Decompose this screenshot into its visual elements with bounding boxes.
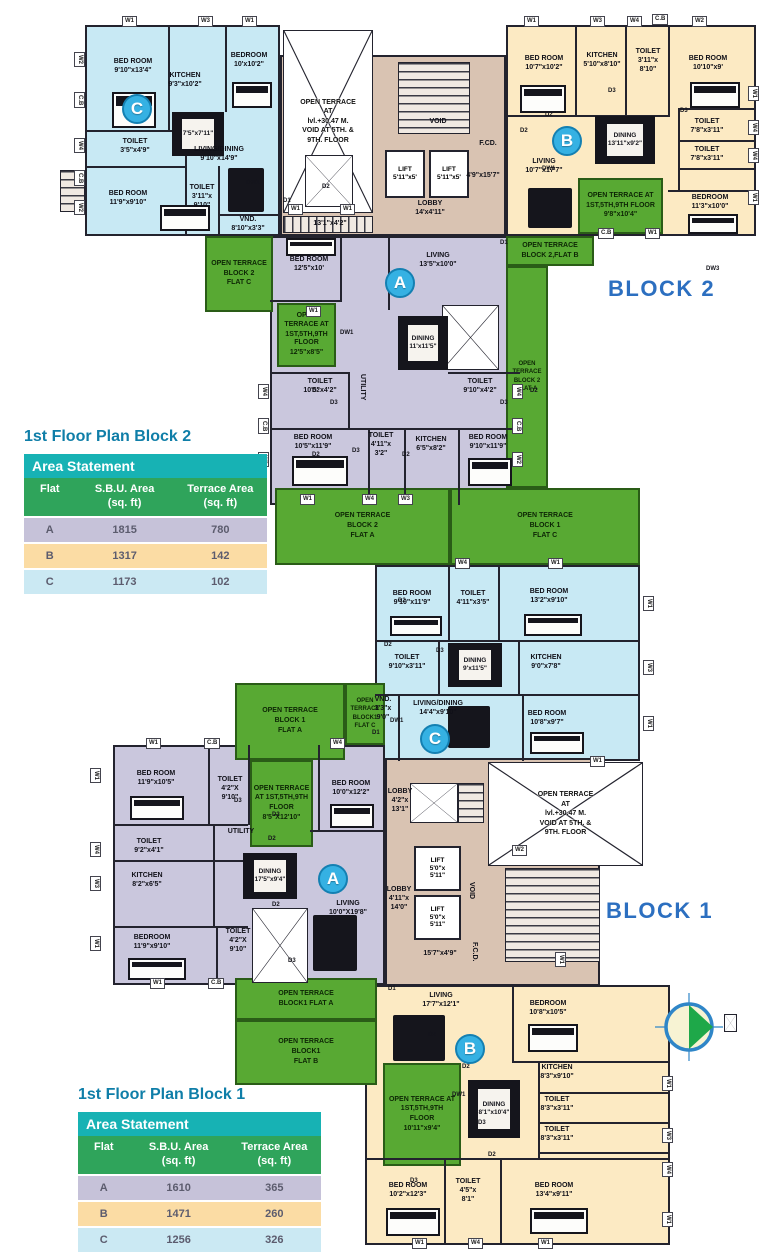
- area-table-rows: A1610365B1471260C1256326: [78, 1174, 321, 1252]
- x-brace-icon: [253, 909, 307, 982]
- room-label-living: LIVING10'0"X19'8": [316, 900, 380, 918]
- door-d2: D2: [402, 452, 410, 458]
- wall: [340, 236, 342, 302]
- marker-w1: W1: [590, 756, 605, 767]
- marker-w1: W1: [524, 16, 539, 27]
- marker-w4: W4: [512, 384, 523, 399]
- door-d3: D3: [410, 1178, 418, 1184]
- door-d3: D3: [352, 448, 360, 454]
- block1-title: BLOCK 1: [606, 898, 713, 924]
- room-label-bedroom: BED ROOM9'10"x11'9": [458, 434, 518, 452]
- room-label-bedroom: BED ROOM10'0"x12'2": [320, 780, 382, 798]
- flat-cell: B: [24, 544, 76, 568]
- column-header: Flat: [24, 478, 76, 516]
- wall: [668, 190, 756, 192]
- door-d3: D3: [436, 648, 444, 654]
- area-statement-header: Area Statement: [78, 1112, 321, 1136]
- sbu-area-cell: 1610: [130, 1176, 228, 1200]
- terrace-area-cell: 102: [174, 570, 267, 594]
- dining-table-c2-label: 7'5"x7'11": [183, 130, 214, 138]
- wall: [375, 640, 640, 642]
- marker-w1: W1: [555, 952, 566, 967]
- terrace-block1-flat-a-bottom: OPEN TERRACEBLOCK1 FLAT A: [235, 978, 377, 1020]
- flat-badge-b: B: [552, 126, 582, 156]
- marker-w2: W2: [74, 52, 85, 67]
- bed-icon: [130, 796, 184, 820]
- marker-w3: W3: [590, 16, 605, 27]
- column-header: Terrace Area(sq. ft): [228, 1136, 321, 1174]
- door-d1: D1: [372, 730, 380, 736]
- marker-cb: C.B: [74, 92, 85, 108]
- marker-w1: W1: [412, 1238, 427, 1249]
- wall: [678, 108, 756, 110]
- room-label-fcd: F.C.D.: [464, 942, 478, 961]
- compass-icon: [655, 993, 723, 1066]
- marker-w2: W2: [512, 452, 523, 467]
- room-label-bedroom: BED ROOM10'7"x10'2": [510, 55, 578, 73]
- sbu-area-cell: 1256: [130, 1228, 228, 1252]
- terrace-b2-inner: OPEN TERRACE AT1ST,5TH,9TH FLOOR9'8"x10'…: [578, 178, 663, 234]
- room-label-toilet: TOILET7'8"x3'11": [678, 146, 736, 164]
- column-header: Terrace Area(sq. ft): [174, 478, 267, 516]
- door-dw1: DW1: [340, 330, 353, 336]
- bed-icon: [390, 616, 442, 636]
- block2-title: BLOCK 2: [608, 276, 715, 302]
- door-d1: D1: [500, 240, 508, 246]
- door-d3: D3: [608, 88, 616, 94]
- terrace-b1-inner: OPEN TERRACE AT1ST,5TH,9THFLOOR10'11"x9'…: [383, 1063, 461, 1166]
- wall: [113, 860, 248, 862]
- room-label-kitchen: KITCHEN8'3"x9'10": [528, 1064, 586, 1082]
- flat-badge-c: C: [122, 94, 152, 124]
- marker-w1: W1: [300, 494, 315, 505]
- sbu-area-cell: 1471: [130, 1202, 228, 1226]
- dining-table-a2-label: DINING11'x11'5": [409, 335, 436, 351]
- wall: [270, 372, 350, 374]
- stair-void-a1: [252, 908, 308, 983]
- area-statement-card-block2: 1st Floor Plan Block 2 Area Statement Fl…: [24, 428, 267, 594]
- column-header: Flat: [78, 1136, 130, 1174]
- stairs-lobby1-small: [458, 783, 484, 823]
- door-d3: D3: [234, 798, 242, 804]
- dining-table-b2: DINING13'11"x9'2": [595, 116, 655, 164]
- door-d2: D2: [312, 388, 320, 394]
- flat-cell: B: [78, 1202, 130, 1226]
- room-label-void-label: VOID: [463, 882, 475, 899]
- stair-void-block2: [305, 155, 353, 207]
- area-table-columns: FlatS.B.U. Area(sq. ft)Terrace Area(sq. …: [78, 1136, 321, 1174]
- plan-title-block1: 1st Floor Plan Block 1: [78, 1086, 321, 1104]
- room-label-bedroom: BED ROOM10'8"x9'7": [514, 710, 580, 728]
- door-dw3: DW3: [706, 266, 719, 272]
- marker-w3: W3: [90, 876, 101, 891]
- dining-table-a1: DINING17'5"x9'4": [243, 853, 297, 899]
- marker-w1: W1: [146, 738, 161, 749]
- wall: [375, 694, 640, 696]
- dining-table-c1: DINING9'x11'5": [448, 643, 502, 687]
- floor-plan-canvas: BLOCK 2 BLOCK 1 1st Floor Plan Block 2 A…: [0, 0, 769, 1260]
- room-label-bedroom: BEDROOM11'9"x9'10": [116, 934, 188, 952]
- room-label-living: LIVING13'5"x10'0": [408, 252, 468, 270]
- area-table-columns: FlatS.B.U. Area(sq. ft)Terrace Area(sq. …: [24, 478, 267, 516]
- marker-w1: W1: [306, 306, 321, 317]
- marker-w3: W3: [198, 16, 213, 27]
- marker-w1: W1: [748, 86, 759, 101]
- door-d2: D2: [322, 184, 330, 190]
- wall: [538, 1092, 670, 1094]
- bed-icon: [690, 82, 740, 108]
- room-label-living-dining: LIVING/DINING9'10"x14'9": [178, 146, 260, 164]
- room-label-stair-dims: 15'7"x4'9": [412, 950, 468, 959]
- room-label-void-label: VOID: [420, 118, 456, 127]
- marker-w1: W1: [748, 190, 759, 205]
- wall: [500, 1158, 502, 1245]
- area-row-flat-C: C1256326: [78, 1226, 321, 1252]
- area-table-rows: A1815780B1317142C1173102: [24, 516, 267, 594]
- marker-cb: C.B: [512, 418, 523, 434]
- room-label-kitchen: KITCHEN9'0"x7'8": [520, 654, 572, 672]
- sofa-icon: [393, 1015, 445, 1061]
- door-d3: D3: [500, 400, 508, 406]
- marker-w4: W4: [748, 148, 759, 163]
- door-dw1: DW1: [452, 1092, 465, 1098]
- wall: [213, 824, 215, 928]
- marker-w1: W1: [538, 1238, 553, 1249]
- sofa-icon: [228, 168, 264, 212]
- terrace-band-block1-flat-c: OPEN TERRACEBLOCK 1FLAT C: [450, 488, 640, 565]
- door-d2: D2: [312, 452, 320, 458]
- area-row-flat-C: C1173102: [24, 568, 267, 594]
- bed-icon: [524, 614, 582, 636]
- wall: [498, 565, 500, 640]
- room-label-toilet: TOILET4'11"x3'2": [360, 432, 402, 458]
- wall: [270, 428, 520, 430]
- room-label-utility: UTILITY: [220, 828, 262, 837]
- room-label-lobby: LOBBY14'x4'11": [402, 200, 458, 218]
- terrace-area-cell: 326: [228, 1228, 321, 1252]
- room-label-bedroom: BEDROOM11'3"x10'0": [680, 194, 740, 212]
- wall: [678, 168, 756, 170]
- sofa-icon: [313, 915, 357, 971]
- bed-icon: [128, 958, 186, 980]
- room-label-toilet: TOILET9'10"x3'11": [378, 654, 436, 672]
- flat-cell: A: [78, 1176, 130, 1200]
- room-label-toilet: TOILET3'5"x4'9": [112, 138, 158, 156]
- x-brace-icon: [725, 1015, 736, 1031]
- lift-1-block2: LIFT5'11"x5': [385, 150, 425, 198]
- room-label-bedroom: BED ROOM9'10"x11'9": [380, 590, 444, 608]
- room-label-toilet: TOILET4'2"X9'10": [216, 928, 260, 954]
- room-label-toilet: TOILET3'11"x8'10": [628, 48, 668, 74]
- door-d2: D2: [384, 642, 392, 648]
- room-label-bedroom: BED ROOM11'9"x9'10": [96, 190, 160, 208]
- marker-w1: W1: [643, 596, 654, 611]
- marker-w4: W4: [662, 1162, 673, 1177]
- marker-cb: C.B: [204, 738, 220, 749]
- room-label-bedroom: BED ROOM12'5"x10': [278, 256, 340, 274]
- dining-table-a1-label: DINING17'5"x9'4": [255, 868, 286, 884]
- door-d2: D2: [520, 128, 528, 134]
- flat-badge-c: C: [420, 724, 450, 754]
- bed-icon: [286, 238, 336, 256]
- marker-cb: C.B: [208, 978, 224, 989]
- door-d2: D2: [272, 902, 280, 908]
- terrace-block2-flat-b-strip: OPEN TERRACEBLOCK 2,FLAT B: [506, 236, 594, 266]
- area-row-flat-A: A1815780: [24, 516, 267, 542]
- stairs-block1-main: [505, 868, 600, 962]
- marker-w4: W4: [468, 1238, 483, 1249]
- marker-w1: W1: [340, 204, 355, 215]
- room-label-toilet: TOILET3'11"x9'10": [184, 184, 220, 210]
- x-brace-icon: [306, 156, 352, 206]
- lift-1-block1: LIFT5'0"x5'11": [414, 846, 461, 891]
- room-label-lobby: LOBBY4'2"x13'1": [386, 788, 414, 814]
- wall: [248, 745, 250, 825]
- flat-cell: C: [78, 1228, 130, 1252]
- wall: [538, 1152, 670, 1154]
- wall: [85, 166, 187, 168]
- marker-w4: W4: [330, 738, 345, 749]
- flat-badge-a: A: [385, 268, 415, 298]
- bed-icon: [530, 1208, 588, 1234]
- wall: [538, 1122, 670, 1124]
- marker-w1: W1: [150, 978, 165, 989]
- marker-w4: W4: [362, 494, 377, 505]
- room-label-bedroom: BED ROOM13'2"x9'10": [516, 588, 582, 606]
- marker-w2: W2: [692, 16, 707, 27]
- marker-cb: C.B: [74, 170, 85, 186]
- column-header: S.B.U. Area(sq. ft): [76, 478, 174, 516]
- door-d2: D2: [268, 836, 276, 842]
- room-label-kitchen: KITCHEN8'2"x6'5": [118, 872, 176, 890]
- room-label-stair-dims: 13'1"x4'2": [300, 220, 360, 229]
- column-header: S.B.U. Area(sq. ft): [130, 1136, 228, 1174]
- terrace-area-cell: 260: [228, 1202, 321, 1226]
- area-row-flat-B: B1317142: [24, 542, 267, 568]
- bed-icon: [530, 732, 584, 754]
- room-label-toilet: TOILET4'2"X9'10": [212, 776, 248, 802]
- door-d2: D2: [530, 388, 538, 394]
- marker-w3: W3: [398, 494, 413, 505]
- terrace-area-cell: 365: [228, 1176, 321, 1200]
- wall: [113, 824, 248, 826]
- door-d3: D3: [288, 958, 296, 964]
- dining-table-b2-label: DINING13'11"x9'2": [608, 132, 642, 148]
- wall: [444, 1158, 446, 1245]
- marker-w1: W1: [548, 558, 563, 569]
- marker-cb: C.B: [652, 14, 668, 25]
- room-label-bedroom: BED ROOM10'10"x9': [676, 55, 740, 73]
- bed-icon: [330, 804, 374, 828]
- dining-table-b1: DINING8'1"x10'4": [468, 1080, 520, 1138]
- marker-w1: W1: [643, 716, 654, 731]
- terrace-block2-flat-c: OPEN TERRACEBLOCK 2FLAT C: [205, 236, 273, 312]
- room-label-toilet: TOILET10'5"x4'2": [292, 378, 348, 396]
- marker-w1: W1: [242, 16, 257, 27]
- bed-icon: [292, 456, 348, 486]
- door-d2: D2: [488, 1152, 496, 1158]
- door-d1: D1: [388, 986, 396, 992]
- wall: [348, 372, 350, 430]
- dining-table-a2: DINING11'x11'5": [398, 316, 448, 370]
- terrace-block1-flat-a-top: OPEN TERRACEBLOCK 1FLAT A: [235, 683, 345, 760]
- sofa-icon: [528, 188, 572, 228]
- marker-w4: W4: [455, 558, 470, 569]
- room-label-bedroom: BED ROOM11'9"x10'5": [120, 770, 192, 788]
- wall: [310, 830, 385, 832]
- room-label-fcd: F.CD.: [470, 140, 506, 149]
- marker-w1: W1: [288, 204, 303, 215]
- door-dw1: DW1: [246, 180, 259, 186]
- dining-table-c1-label: DINING9'x11'5": [463, 657, 487, 673]
- bed-icon: [520, 85, 566, 113]
- marker-w4: W4: [627, 16, 642, 27]
- marker-w1: W1: [662, 1076, 673, 1091]
- door-dw1: DW1: [542, 166, 555, 172]
- flat-cell: A: [24, 518, 76, 542]
- wall: [522, 694, 524, 761]
- door-d2: D2: [398, 598, 406, 604]
- bed-icon: [528, 1024, 578, 1052]
- marker-w3: W3: [643, 660, 654, 675]
- wall: [448, 372, 520, 374]
- room-label-kitchen: KITCHEN5'10"x8'10": [578, 52, 626, 70]
- wall: [625, 25, 627, 117]
- wall: [270, 300, 342, 302]
- room-label-toilet: TOILET4'5"x8'1": [448, 1178, 488, 1204]
- room-label-lobby: LOBBY4'11"x14'0": [384, 886, 414, 912]
- door-d3: D3: [680, 108, 688, 114]
- room-label-verandah: VND.8'10"x3'3": [222, 216, 274, 234]
- door-dw1: DW1: [390, 718, 403, 724]
- flat-cell: C: [24, 570, 76, 594]
- plan-title-block2: 1st Floor Plan Block 2: [24, 428, 267, 446]
- flat-badge-b: B: [455, 1034, 485, 1064]
- marker-w4: W4: [258, 384, 269, 399]
- dining-table-b1-label: DINING8'1"x10'4": [479, 1101, 510, 1117]
- marker-w1: W1: [90, 936, 101, 951]
- door-d2: D2: [428, 1032, 436, 1038]
- area-table-block1: Area Statement FlatS.B.U. Area(sq. ft)Te…: [78, 1112, 321, 1252]
- room-label-bedroom: BED ROOM10'2"x12'3": [374, 1182, 442, 1200]
- compass-box: [724, 1014, 737, 1032]
- room-label-toilet: TOILET9'2"x4'1": [120, 838, 178, 856]
- room-label-bedroom: BEDROOM10'x10'2": [220, 52, 278, 70]
- marker-w4: W4: [74, 138, 85, 153]
- bed-icon: [386, 1208, 440, 1236]
- wall: [365, 1158, 670, 1160]
- wall: [512, 985, 514, 1063]
- bed-icon: [232, 82, 272, 108]
- room-label-stair-dims: 4'9"x15'7": [462, 172, 504, 181]
- door-d3: D3: [330, 400, 338, 406]
- area-row-flat-A: A1610365: [78, 1174, 321, 1200]
- sbu-area-cell: 1317: [76, 544, 174, 568]
- wall: [668, 25, 670, 117]
- door-d2: D2: [462, 1064, 470, 1070]
- marker-w2: W2: [512, 845, 527, 856]
- x-brace-icon: [443, 306, 498, 369]
- sbu-area-cell: 1173: [76, 570, 174, 594]
- room-label-toilet: TOILET4'11"x3'5": [448, 590, 498, 608]
- room-label-bedroom: BED ROOM9'10"x13'4": [96, 58, 170, 76]
- door-d3: D3: [478, 1120, 486, 1126]
- room-label-living-dining: LIVING/DINING14'4"x9'10": [400, 700, 476, 718]
- area-statement-card-block1: 1st Floor Plan Block 1 Area Statement Fl…: [78, 1086, 321, 1252]
- bed-icon: [688, 214, 738, 234]
- stair-void-lobby1: [410, 783, 458, 823]
- room-label-toilet: TOILET7'8"x3'11": [678, 118, 736, 136]
- room-label-living: LIVING17'7"x12'1": [410, 992, 472, 1010]
- marker-w4: W4: [748, 120, 759, 135]
- door-d1: D1: [283, 198, 291, 204]
- x-brace-icon: [411, 784, 457, 822]
- wall: [678, 140, 756, 142]
- flat-badge-a: A: [318, 864, 348, 894]
- marker-w2: W2: [74, 200, 85, 215]
- sbu-area-cell: 1815: [76, 518, 174, 542]
- area-statement-header: Area Statement: [24, 454, 267, 478]
- door-d2: D2: [272, 812, 280, 818]
- room-label-bedroom: BED ROOM13'4"x9'11": [518, 1182, 590, 1200]
- marker-w1: W1: [122, 16, 137, 27]
- door-d2: D2: [545, 112, 553, 118]
- terrace-area-cell: 142: [174, 544, 267, 568]
- area-table-block2: Area Statement FlatS.B.U. Area(sq. ft)Te…: [24, 454, 267, 594]
- room-label-toilet: TOILET9'10"x4'2": [452, 378, 508, 396]
- bed-icon: [468, 458, 512, 486]
- terrace-block1-flat-b: OPEN TERRACEBLOCK1FLAT B: [235, 1020, 377, 1085]
- terrace-area-cell: 780: [174, 518, 267, 542]
- room-label-kitchen: KITCHEN6'5"x8'2": [406, 436, 456, 454]
- room-label-utility: UTILITY: [352, 374, 366, 400]
- area-row-flat-B: B1471260: [78, 1200, 321, 1226]
- marker-w1: W1: [645, 228, 660, 239]
- room-label-toilet: TOILET8'3"x3'11": [528, 1096, 586, 1114]
- room-label-bedroom: BED ROOM10'5"x11'9": [280, 434, 346, 452]
- room-label-kitchen: KITCHEN9'3"x10'2": [160, 72, 210, 90]
- wall: [512, 1061, 670, 1063]
- wall: [208, 745, 210, 825]
- lift-2-block1: LIFT5'0"x5'11": [414, 895, 461, 940]
- room-label-bedroom: BEDROOM10'8"x10'5": [514, 1000, 582, 1018]
- marker-w4: W4: [90, 842, 101, 857]
- marker-w1: W1: [90, 768, 101, 783]
- wardrobe-void-a2: [442, 305, 499, 370]
- marker-w1: W1: [662, 1212, 673, 1227]
- marker-w3: W3: [662, 1128, 673, 1143]
- marker-cb: C.B: [598, 228, 614, 239]
- room-label-toilet: TOILET8'3"x3'11": [528, 1126, 586, 1144]
